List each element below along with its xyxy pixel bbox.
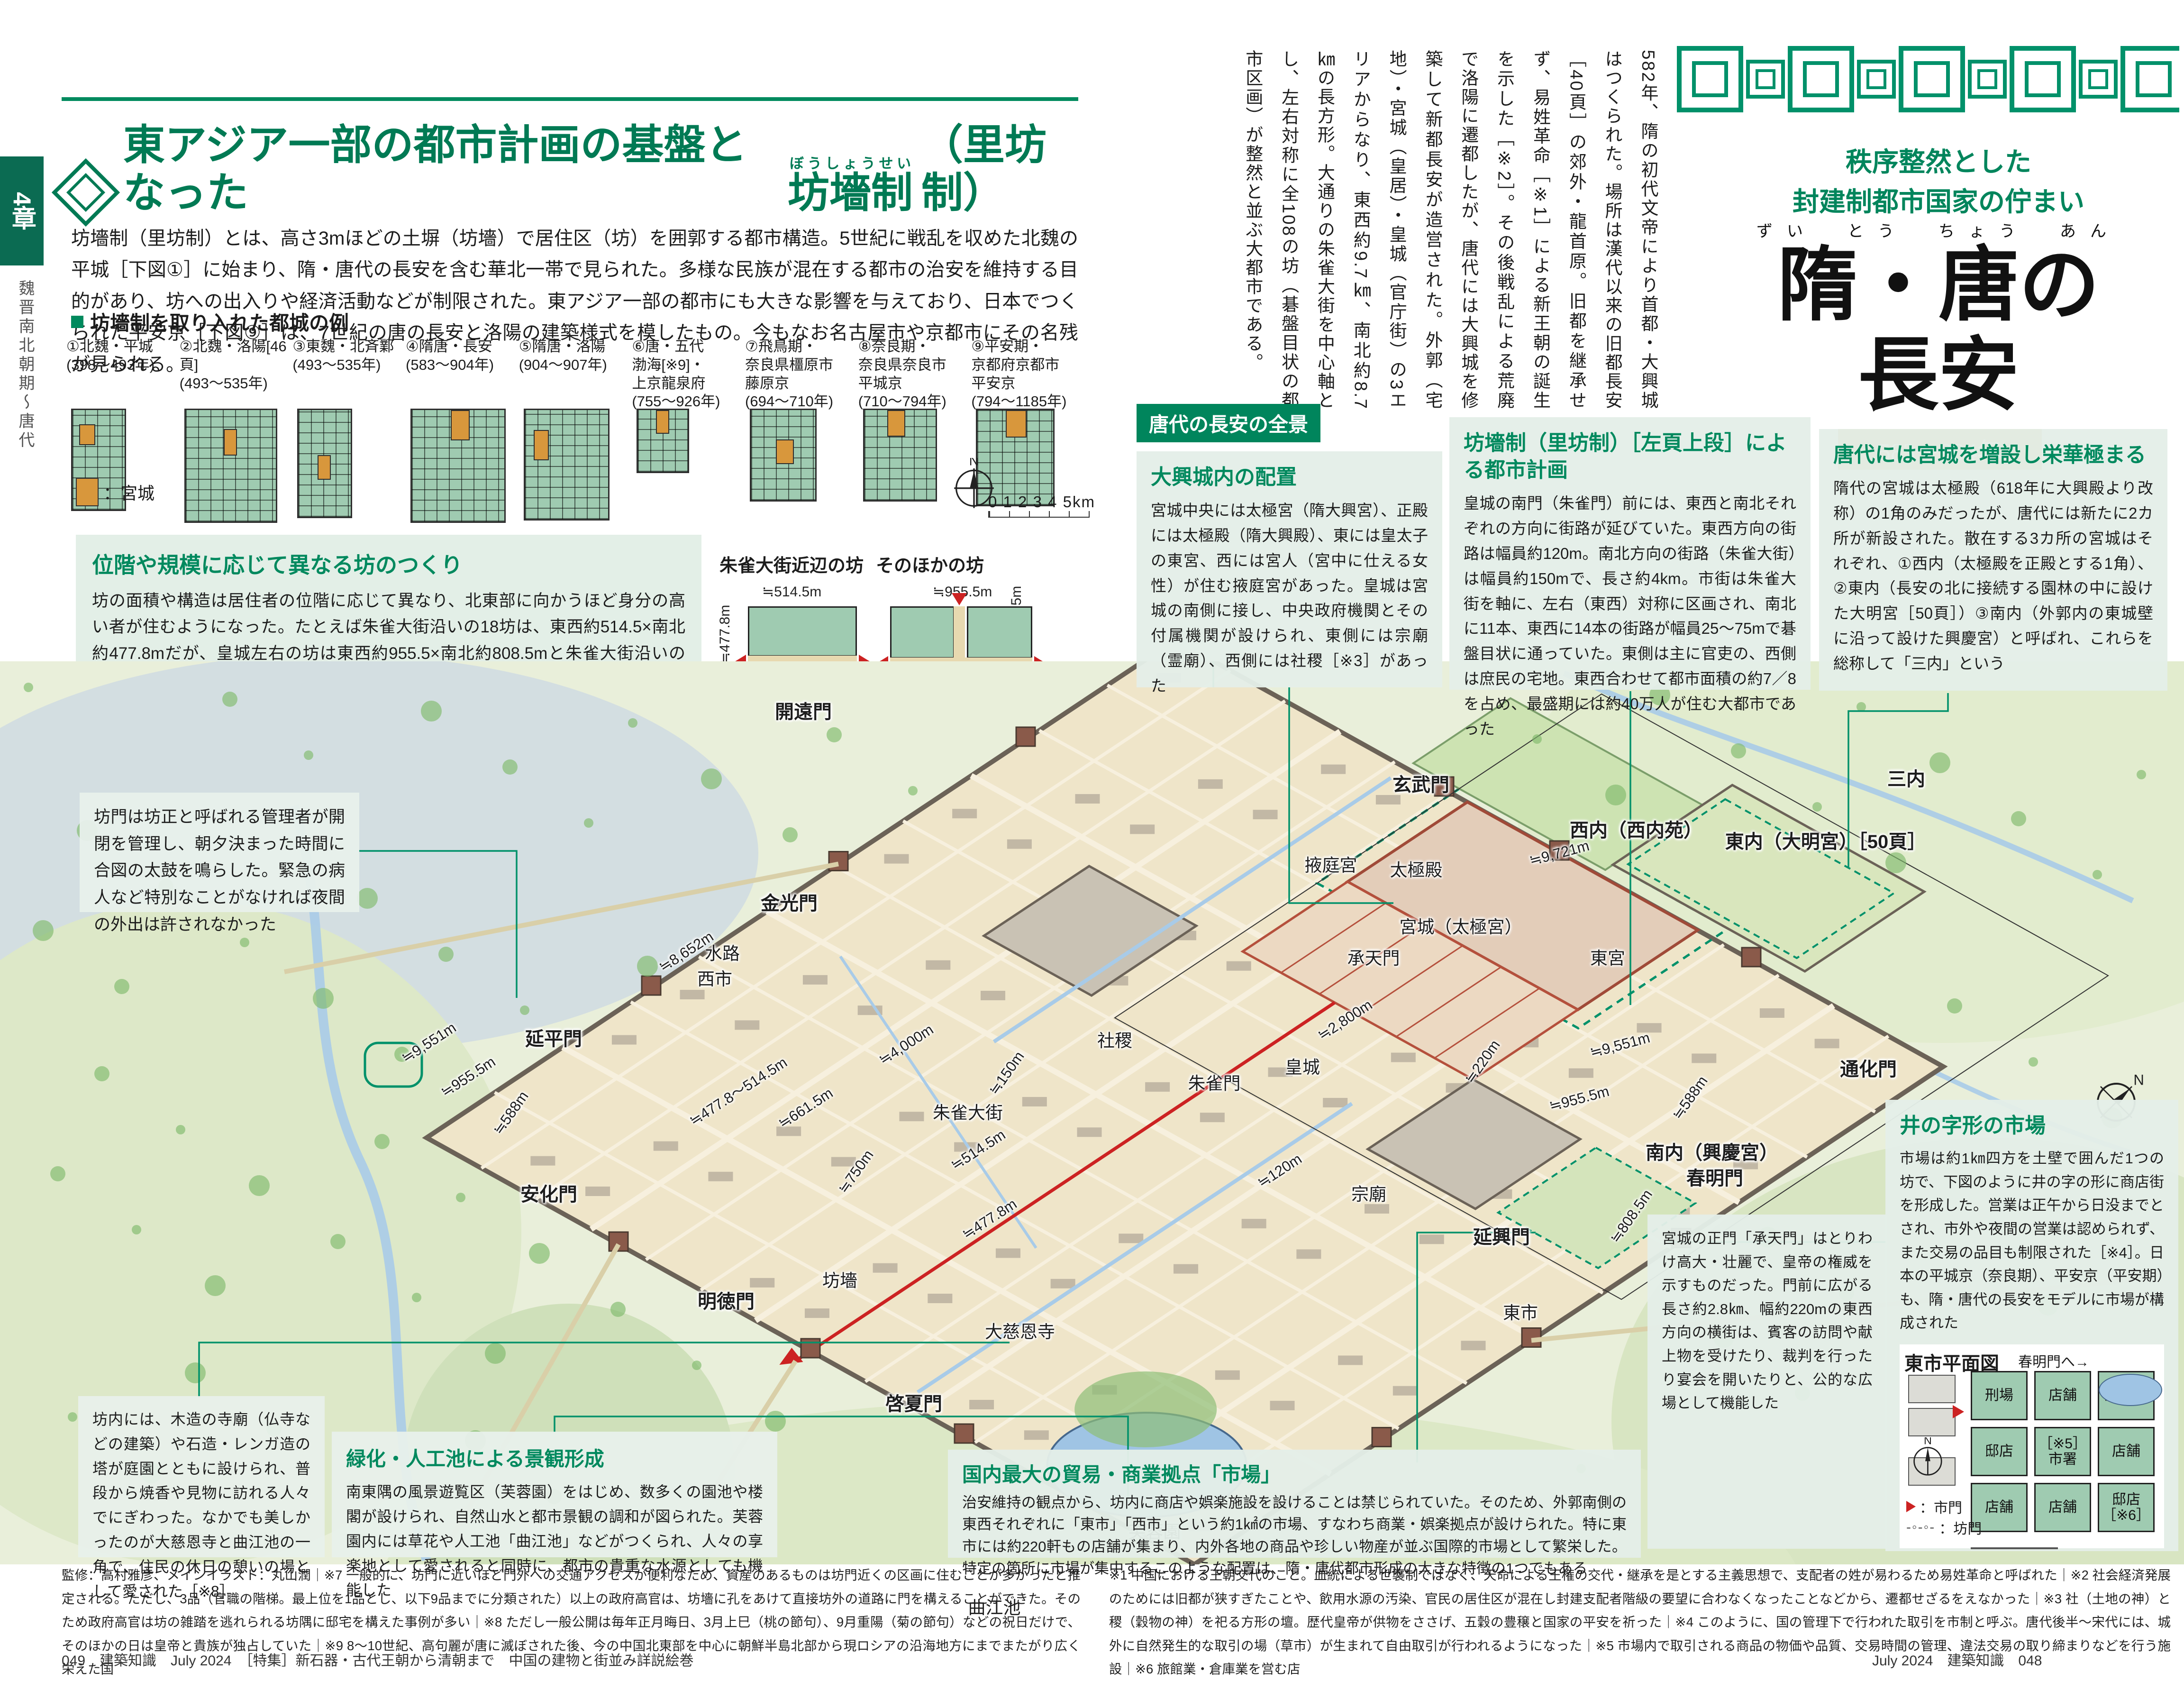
city-example: ⑦飛鳥期・ 奈良県橿原市 藤原京 (694～710年): [745, 338, 855, 522]
market-cell: 店舗: [2034, 1483, 2091, 1532]
scale-ticks: [988, 511, 1090, 518]
market-cell: ［※5］ 市署: [2034, 1427, 2091, 1476]
overview-tag: 唐代の長安の全景: [1137, 404, 1320, 442]
city-example: ⑤隋唐・洛陽 (904～907年): [519, 338, 628, 522]
pond-shape: [2099, 1374, 2162, 1406]
title-pre: 東アジア一部の都市計画の基盤となった: [123, 121, 779, 217]
city-caption: ⑧奈良期・ 奈良県奈良市 平城京 (710～794年): [858, 338, 968, 411]
city-caption: ⑨平安期・ 京都府京都市 平安京 (794～1185年): [971, 338, 1081, 411]
city-example: ⑥唐・五代 渤海[※9]・ 上京龍泉府 (755～926年): [632, 338, 741, 522]
scale-bar: 0 1 2 3 4 5km: [988, 493, 1095, 518]
main-title-sui-tang-changan: ずい とう ちょう あん 隋・唐の 長安: [1716, 223, 2161, 421]
city-example: ③東魏・北斉鄴 (493～535年): [292, 338, 402, 522]
bou-diagram-right-title: そのほかの坊: [876, 551, 984, 577]
title-ruby: 坊墻制ぼうしょうせい: [788, 156, 913, 217]
market-cell: 店舗: [2098, 1427, 2155, 1476]
market-cell: 刑場: [1971, 1371, 2028, 1420]
main-title-ruby: ずい とう ちょう あん: [1716, 223, 2161, 241]
palace-swatch: [776, 439, 794, 464]
left-page-title: 東アジア一部の都市計画の基盤となった 坊墻制ぼうしょうせい （里坊制）: [62, 121, 1104, 217]
palace-swatch: [534, 430, 549, 460]
bomon-note-box: 坊門は坊正と呼ばれる管理者が開閉を管理し、朝夕決まった時間に合図の太鼓を鳴らした…: [80, 793, 359, 912]
palace-swatch: [224, 429, 237, 456]
bomon-triangle: [952, 593, 967, 605]
city-thumbnail: [184, 409, 277, 523]
city-thumbnail: [410, 409, 506, 523]
examples-heading: 坊墻制を取り入れた都城の例: [71, 307, 349, 336]
folio-left: 049 建築知識 July 2024 ［特集］新石器・古代王朝から清朝まで 中国…: [62, 1649, 693, 1670]
city-thumbnail: [297, 409, 352, 518]
city-thumbnail: [863, 409, 937, 502]
city-caption: ⑥唐・五代 渤海[※9]・ 上京龍泉府 (755～926年): [632, 338, 741, 411]
diamond-icon: [52, 158, 120, 227]
bou-structure-heading: 位階や規模に応じて異なる坊のつくり: [92, 548, 685, 579]
city-caption: ③東魏・北斉鄴 (493～535年): [292, 338, 402, 375]
box-well-market: 井の字形の市場 市場は約1㎞四方を土壁で囲んだ1つの坊で、下図のように井の字の形…: [1885, 1100, 2178, 1551]
market-cell: 邸店 ［※6］: [2098, 1483, 2155, 1532]
market-legend-ichimon: ：市門: [1906, 1496, 1962, 1517]
city-thumbnail: [750, 409, 817, 502]
city-examples-row: ①北魏・平城 (398～493年) ②北魏・洛陽[46頁] (493～535年)…: [66, 338, 1081, 522]
box-market-hub: 国内最大の貿易・商業拠点「市場」 治安維持の観点から、坊内に商店や娯楽施設を設け…: [948, 1450, 1641, 1558]
folio-right: July 2024 建築知識 048: [1872, 1649, 2042, 1670]
market-legend-boumon: -◦-◦- ：坊門: [1906, 1517, 1982, 1538]
top-rule: [62, 97, 1078, 101]
box-daxing-layout: 大興城内の配置 宮城中央には太極宮（隋大興宮）、正殿には太極殿（隋大興殿）、東に…: [1137, 451, 1442, 687]
market-cell: 店舗: [2034, 1371, 2091, 1420]
palace-swatch: [79, 424, 95, 445]
city-example: ②北魏・洛陽[46頁] (493～535年): [180, 338, 289, 522]
temple-note-box: 坊内には、木造の寺廟（仏寺などの建築）や石造・レンガ造の塔が庭園とともに設けられ…: [78, 1396, 325, 1557]
palace-swatch: [1006, 410, 1027, 438]
examples-legend: ：宮城: [76, 478, 155, 506]
city-caption: ⑦飛鳥期・ 奈良県橿原市 藤原京 (694～710年): [745, 338, 855, 411]
box-boushou-plan: 坊墻制（里坊制）［左頁上段］による都市計画 皇城の南門（朱雀門）前には、東西と南…: [1449, 417, 1811, 690]
chapter-period-label: 魏晋南北朝期～唐代: [7, 280, 37, 526]
east-market-plan: 東市平面図 春明門へ→ 刑場店舗放生池邸店［※5］ 市署店舗店舗店舗邸店 ［※6…: [1900, 1344, 2164, 1548]
market-cell: 邸店: [1971, 1427, 2028, 1476]
title-post: （里坊制）: [921, 121, 1104, 217]
city-thumbnail: [637, 409, 689, 473]
palace-swatch: [318, 455, 331, 480]
lattice-border: [1677, 34, 2179, 124]
palace-swatch: [887, 410, 905, 437]
city-caption: ②北魏・洛陽[46頁] (493～535年): [180, 338, 289, 393]
city-example: ④隋唐・長安 (583～904年): [406, 338, 515, 522]
bou-diagram-left-title: 朱雀大街近辺の坊: [719, 551, 876, 577]
svg-text:N: N: [2133, 1072, 2144, 1088]
palace-swatch: [451, 410, 470, 440]
city-caption: ①北魏・平城 (398～493年): [66, 338, 176, 375]
box-three-palaces: 唐代には宮城を増設し栄華極まる 隋代の宮城は太極殿（618年に大興殿より改称）の…: [1819, 429, 2167, 691]
svg-text:N: N: [969, 458, 979, 468]
city-caption: ⑤隋唐・洛陽 (904～907年): [519, 338, 628, 375]
to-chunming-gate: 春明門へ→: [2018, 1350, 2089, 1371]
dim-left-height: ≒477.8m: [717, 605, 733, 664]
lead-paragraph-vertical: 582年、隋の初代文帝により首都・大興城はつくられた。場所は漢代以来の旧都長安［…: [1164, 50, 1666, 410]
palace-swatch: [656, 410, 669, 434]
kicker: 秩序整然とした 封建制都市国家の佇まい: [1725, 142, 2152, 222]
palace-legend-swatch: [76, 478, 99, 506]
city-thumbnail: [524, 409, 610, 521]
greenery-box: 緑化・人工池による景観形成 南東隅の風景遊覧区（芙蓉園）をはじめ、数多くの園池や…: [332, 1432, 777, 1557]
box-chengtianmen: 宮城の正門「承天門」はとりわけ高大・壮麗で、皇帝の権威を示すものだった。門前に広…: [1647, 1215, 1887, 1549]
dim-left-width: ≒514.5m: [762, 584, 821, 600]
chapter-tab: 4章: [0, 156, 44, 265]
city-caption: ④隋唐・長安 (583～904年): [406, 338, 515, 375]
market-compass-icon: N: [1908, 1437, 1951, 1480]
market-gate-triangle: [1953, 1405, 1964, 1418]
svg-text:N: N: [1924, 1437, 1932, 1446]
